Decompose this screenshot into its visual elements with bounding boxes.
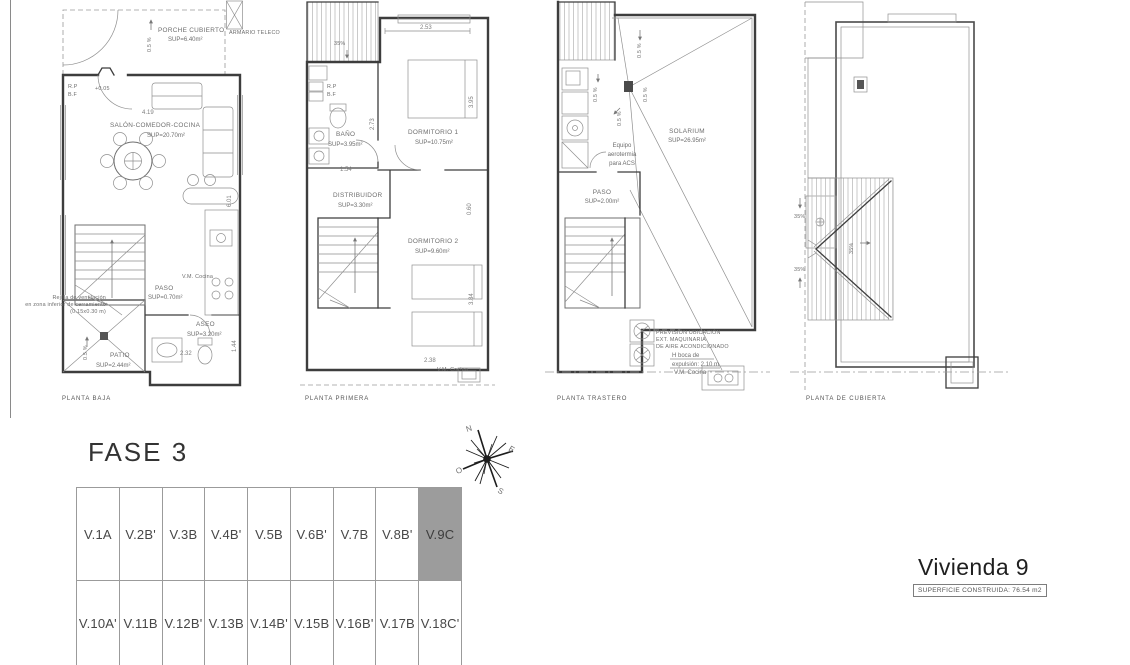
roof-slope-label-3: 35% xyxy=(794,267,805,273)
room-label-armario: ARMARIO TELECO xyxy=(229,30,280,36)
top-tab xyxy=(888,14,956,22)
room-label-salon: SALÓN-COMEDOR-COCINA xyxy=(110,120,201,129)
entry-door-arc xyxy=(98,75,132,109)
slope-label-4: 0.5 % xyxy=(617,111,623,126)
unit-cell-v1a[interactable]: V.1A xyxy=(77,488,120,581)
site-phase-title: FASE 3 xyxy=(88,437,188,468)
rejilla-note-3: (0.15x0.30 m) xyxy=(70,309,106,315)
room-area-porche: SUP=6.40m² xyxy=(168,37,203,43)
terrace-hatch xyxy=(558,2,615,60)
room-area-banyo: SUP=3.95m² xyxy=(328,142,363,148)
dining-table xyxy=(101,133,166,190)
unit-cell-v13b[interactable]: V.13B xyxy=(205,581,248,665)
plan-title-trastero: PLANTA TRASTERO xyxy=(557,396,627,402)
plan-planta-baja: PORCHE CUBIERTO SUP=6.40m² 0.5 % ARMARIO… xyxy=(25,1,280,402)
dim-banyo-h: 2.73 xyxy=(370,118,376,130)
dim-dorm2-h: 3.84 xyxy=(469,293,475,305)
compass-center xyxy=(483,455,491,463)
unit-cell-v18c[interactable]: V.18C' xyxy=(419,581,462,665)
terrace-hatch xyxy=(307,2,378,62)
rejilla-note-1: Rejilla de ventilación xyxy=(52,295,106,301)
room-label-distribuidor: DISTRIBUIDOR xyxy=(333,192,382,199)
room-label-paso: PASO xyxy=(155,285,173,292)
bathroom-fixtures xyxy=(309,66,346,164)
dim-right-small: 0.60 xyxy=(467,203,473,215)
plan-title-baja: PLANTA BAJA xyxy=(62,396,111,402)
room-area-dorm1: SUP=10.75m² xyxy=(415,140,453,146)
upper-left-outline xyxy=(805,2,863,58)
rp-label: R.P xyxy=(327,84,337,90)
room-area-patio: SUP=2.44m² xyxy=(96,363,131,369)
slope-label-3: 0.5 % xyxy=(643,87,649,102)
dim-top: 2.53 xyxy=(420,25,432,31)
stairs xyxy=(318,218,378,308)
room-area-paso: SUP=2.00m² xyxy=(585,199,620,205)
slope-label-2: 0.5 % xyxy=(593,87,599,102)
porch-door-arc xyxy=(63,10,118,65)
unit-cell-v6b[interactable]: V.6B' xyxy=(291,488,334,581)
plan-sheet: PORCHE CUBIERTO SUP=6.40m² 0.5 % ARMARIO… xyxy=(0,0,1130,665)
compass-north: N xyxy=(465,423,473,433)
ac-note-5: expulsión: 2.10 m xyxy=(672,362,719,368)
room-label-porche: PORCHE CUBIERTO xyxy=(158,27,224,34)
unit-cell-v3b[interactable]: V.3B xyxy=(163,488,206,581)
plan-planta-cubierta: 35% 35% 35% PLANTA DE CUBIERTA xyxy=(790,2,1010,402)
equipo-line2: aerotermia xyxy=(608,152,637,158)
room-area-distribuidor: SUP=3.30m² xyxy=(338,203,373,209)
bf-label: B.F xyxy=(68,92,77,98)
unit-title: Vivienda 9 xyxy=(918,554,1029,581)
room-area-salon: SUP=20.70m² xyxy=(147,133,185,139)
roof-slope-label-1: 35% xyxy=(794,214,805,220)
room-area-aseo: SUP=3.20m² xyxy=(187,332,222,338)
unit-cell-v12b[interactable]: V.12B' xyxy=(163,581,206,665)
room-area-paso: SUP=0.70m² xyxy=(148,295,183,301)
unit-cell-v5b[interactable]: V.5B xyxy=(248,488,291,581)
unit-cell-v11b[interactable]: V.11B xyxy=(120,581,163,665)
unit-cell-v8b[interactable]: V.8B' xyxy=(376,488,419,581)
plan-title-cubierta: PLANTA DE CUBIERTA xyxy=(806,396,886,402)
ac-note-4: H boca de xyxy=(672,353,700,359)
room-label-aseo: ASEO xyxy=(196,321,215,328)
dim-aseo-height: 1.44 xyxy=(232,340,238,352)
dim-aseo-width: 2.32 xyxy=(180,351,192,357)
room-label-patio: PATIO xyxy=(110,352,130,359)
rp-label: R.P xyxy=(68,84,78,90)
room-label-paso: PASO xyxy=(593,189,611,196)
plan-title-primera: PLANTA PRIMERA xyxy=(305,396,369,402)
ac-note-2: EXT. MAQUINARIA xyxy=(656,337,706,343)
sheet-frame-line xyxy=(10,0,11,418)
unit-cell-v7b[interactable]: V.7B xyxy=(334,488,377,581)
left-strip xyxy=(808,58,836,178)
room-label-dorm2: DORMITORIO 2 xyxy=(408,238,458,245)
dim-dorm1-h: 3.95 xyxy=(469,96,475,108)
bed-dorm1 xyxy=(408,60,477,118)
door-arc xyxy=(590,152,606,168)
plan-planta-primera: 35% 2.53 R.P B.F BAÑO SUP=3.95m² DORMITO… xyxy=(300,2,495,402)
ac-note-3: DE AIRE ACONDICIONADO xyxy=(656,344,729,350)
floor-plans-drawing: PORCHE CUBIERTO SUP=6.40m² 0.5 % ARMARIO… xyxy=(0,0,1130,412)
plan-planta-trastero: 0.5 % 0.5 % 0.5 % 0.5 % SOLARIUM SUP=26.… xyxy=(545,2,770,402)
terrace-slope-label: 35% xyxy=(334,41,345,47)
equipo-line3: para ACS xyxy=(609,161,635,167)
slope-label-1: 0.5 % xyxy=(637,43,643,58)
room-area-solarium: SUP=26.95m² xyxy=(668,138,706,144)
room-area-dorm2: SUP=9.60m² xyxy=(415,249,450,255)
built-area-box: SUPERFICIE CONSTRUIDA: 76.54 m2 xyxy=(913,584,1047,597)
roof-fold-lines xyxy=(618,18,752,370)
dim-bottom: 2.38 xyxy=(424,358,436,364)
drain xyxy=(624,81,633,92)
compass-south: S xyxy=(496,486,505,496)
dim-salon-width: 4.19 xyxy=(142,110,154,116)
chimney-box xyxy=(702,366,744,390)
unit-cell-v14b[interactable]: V.14B' xyxy=(248,581,291,665)
dim-banyo-w: 1.54 xyxy=(340,167,352,173)
ac-note-1: PREVISIÓN UBICACIÓN xyxy=(656,329,721,336)
sofa xyxy=(152,83,233,177)
slope-label: 0.5 % xyxy=(147,37,153,52)
room-label-dorm1: DORMITORIO 1 xyxy=(408,129,458,136)
compass-west: O xyxy=(455,465,464,476)
room-label-banyo: BAÑO xyxy=(336,129,355,138)
site-plan-grid: V.1A V.2B' V.3B V.4B' V.5B V.6B' V.7B V.… xyxy=(76,487,462,665)
door-arcs xyxy=(356,140,420,170)
level-label: +0.05 xyxy=(95,86,110,92)
unit-cell-v2b[interactable]: V.2B' xyxy=(120,488,163,581)
bf-label: B.F xyxy=(327,92,336,98)
unit-cell-v17b[interactable]: V.17B xyxy=(376,581,419,665)
vm-cocina-label: V.M. Cocina xyxy=(182,274,213,280)
roof-slope-label-2: 35% xyxy=(849,243,855,254)
unit-cell-v15b[interactable]: V.15B xyxy=(291,581,334,665)
drain xyxy=(100,332,108,340)
teleco-column-x xyxy=(227,1,243,29)
unit-cell-v10a[interactable]: V.10A' xyxy=(77,581,120,665)
unit-cell-v16b[interactable]: V.16B' xyxy=(334,581,377,665)
unit-cell-v9c-highlighted[interactable]: V.9C xyxy=(419,488,462,581)
ac-note-6: V.M. Cocina xyxy=(674,370,707,376)
vm-cocina-label: V.M. Cocina xyxy=(437,367,468,373)
storage-fixtures xyxy=(562,68,588,168)
unit-cell-v4b[interactable]: V.4B' xyxy=(205,488,248,581)
vent-symbol xyxy=(857,80,864,89)
stairs xyxy=(565,218,640,308)
interior-walls xyxy=(307,62,488,308)
dim-salon-height: 6.01 xyxy=(227,195,233,207)
equipo-line1: Equipo xyxy=(613,143,632,149)
room-label-solarium: SOLARIUM xyxy=(669,128,705,135)
patio-slope-label: 0.5 % xyxy=(83,345,89,360)
stairs xyxy=(75,225,145,305)
rejilla-note-2: en zona inferior de cerramiento xyxy=(25,302,106,308)
